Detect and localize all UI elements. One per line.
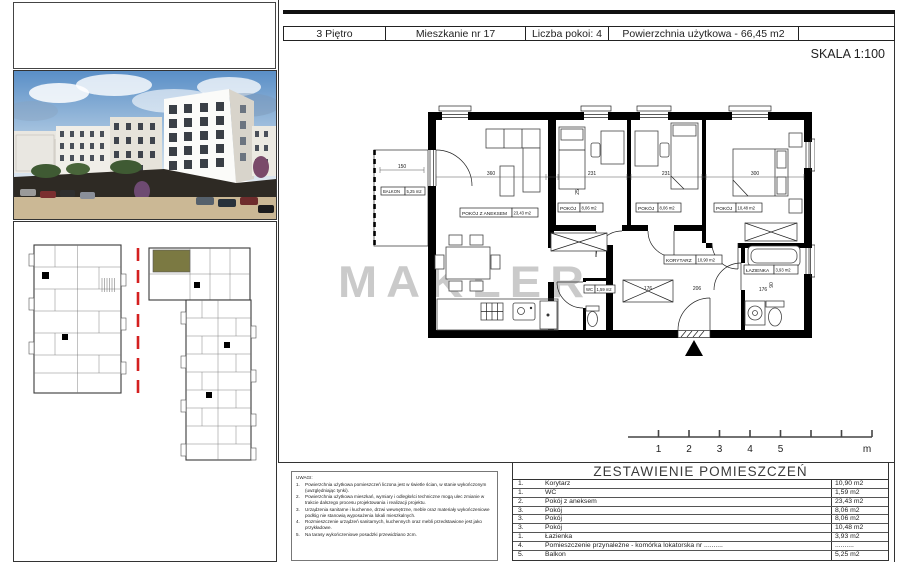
floor-plan: 150 [365,105,815,360]
svg-text:231: 231 [588,171,597,177]
notes-title: UWAGI: [296,475,493,481]
building-photo [13,70,277,220]
svg-text:10,90 m2: 10,90 m2 [698,258,716,263]
table-row: 1. Korytarz 10,90 m2 [513,480,888,489]
svg-text:POKÓJ Z ANEKSEM: POKÓJ Z ANEKSEM [462,210,507,217]
note-item: 3.Urządzenia sanitarne i kuchenne, drzwi… [296,507,493,519]
svg-text:4: 4 [747,444,753,455]
header-cell-apartment: Mieszkanie nr 17 [385,27,525,40]
table-row: 3. Pokój 8,06 m2 [513,515,888,524]
svg-text:BALKON: BALKON [383,189,400,194]
svg-text:10,48 m2: 10,48 m2 [738,206,756,211]
svg-text:WC: WC [586,287,593,292]
svg-text:25: 25 [575,189,581,195]
room-label-pokoj-1: POKÓJ 8,06 m2 [558,203,603,212]
header-cell-floor: 3 Piętro [283,27,385,40]
note-item: 1.Powierzchnia użytkowa pomieszczeń licz… [296,482,493,494]
building-photo-image [14,71,276,219]
svg-text:POKÓJ: POKÓJ [716,205,733,212]
table-row: 1. Łazienka 3,93 m2 [513,533,888,542]
room-label-wc: WC 1,59 m2 [584,285,615,293]
right-page-border [894,10,895,562]
header-table: 3 Piętro Mieszkanie nr 17 Liczba pokoi: … [283,26,895,41]
scale-bar-unit: m [863,444,871,455]
rooms-table: ZESTAWIENIE POMIESZCZEŃ 1. Korytarz 10,9… [512,462,889,561]
svg-text:1: 1 [656,444,662,455]
svg-text:2: 2 [686,444,692,455]
table-row: 3. Pokój 10,48 m2 [513,524,888,533]
building-keyplan-2 [149,248,256,460]
bedroom2-furniture [635,123,698,189]
bedroom3-furniture [733,133,802,241]
svg-text:8,06 m2: 8,06 m2 [660,206,676,211]
ground [14,197,276,219]
room-label-pokoj-2: POKÓJ 8,06 m2 [636,203,681,212]
rooms-table-title: ZESTAWIENIE POMIESZCZEŃ [513,463,888,480]
header-top-bar [283,10,895,14]
wardrobe [745,223,797,241]
svg-text:23,43 m2: 23,43 m2 [514,211,532,216]
svg-text:3: 3 [717,444,723,455]
note-item: 2.Powierzchnia użytkowa mieszkań, wymiar… [296,494,493,506]
entrance [678,331,710,357]
svg-text:206: 206 [693,286,702,292]
room-label-pokoj-z-aneksem: POKÓJ Z ANEKSEM 23,43 m2 [460,208,538,217]
svg-text:231: 231 [662,171,671,177]
svg-text:POKÓJ: POKÓJ [638,205,655,212]
bedroom1-furniture [559,127,624,189]
note-item: 4.Rozmieszczenie urządzeń sanitarnych, k… [296,519,493,531]
scale-bar: 1 2 3 4 5 m [615,425,890,459]
note-item: 5.Na tarasy wykończeniowe posadzki przew… [296,532,493,538]
table-row: 2. Pokój z aneksem 23,43 m2 [513,498,888,507]
svg-text:ŁAZIENKA: ŁAZIENKA [746,268,770,274]
svg-text:POKÓJ: POKÓJ [560,205,577,212]
keyplan-drawing [14,222,275,560]
balcony-door [430,150,472,186]
floorplan-sheet: 3 Piętro Mieszkanie nr 17 Liczba pokoi: … [0,0,899,574]
header-cell-empty [798,27,895,40]
svg-text:360: 360 [487,171,496,177]
svg-text:3,93 m2: 3,93 m2 [776,268,792,273]
room-label-korytarz: KORYTARZ 10,90 m2 [664,255,722,264]
table-row: 4. Pomieszczenie przynależne - komórka l… [513,542,888,551]
header-cell-rooms: Liczba pokoi: 4 [525,27,608,40]
svg-text:5: 5 [778,444,784,455]
balcony: 150 [374,150,428,246]
table-row: 1. WC 1,59 m2 [513,489,888,498]
svg-text:150: 150 [398,164,407,170]
table-row: 3. Pokój 8,06 m2 [513,507,888,516]
svg-text:90: 90 [769,282,775,288]
svg-text:1,59 m2: 1,59 m2 [597,287,613,292]
logo-box [13,2,276,69]
wc-fixtures [586,306,599,327]
entrance-arrow [685,340,703,356]
room-label-pokoj-3: POKÓJ 10,48 m2 [714,203,762,212]
room-label-balkon: BALKON 5,25 m2 [381,187,425,195]
svg-text:300: 300 [751,171,760,177]
header-cell-area: Powierzchnia użytkowa - 66,45 m2 [608,27,798,40]
room-label-lazienka: ŁAZIENKA 3,93 m2 [744,265,798,274]
svg-text:5,25 m2: 5,25 m2 [407,189,423,194]
scale-label: SKALA 1:100 [600,47,885,62]
livingroom-furniture [435,129,558,330]
svg-text:KORYTARZ: KORYTARZ [666,258,692,264]
notes-box: UWAGI: 1.Powierzchnia użytkowa pomieszcz… [291,471,498,561]
highlighted-unit [153,250,190,272]
keyplan-box [13,221,277,562]
svg-text:176: 176 [644,286,653,292]
table-row: 5. Balkon 5,25 m2 [513,551,888,560]
building-keyplan-1 [29,245,126,393]
svg-text:176: 176 [759,287,768,293]
left-column-divider [278,0,279,463]
svg-text:8,06 m2: 8,06 m2 [582,206,598,211]
